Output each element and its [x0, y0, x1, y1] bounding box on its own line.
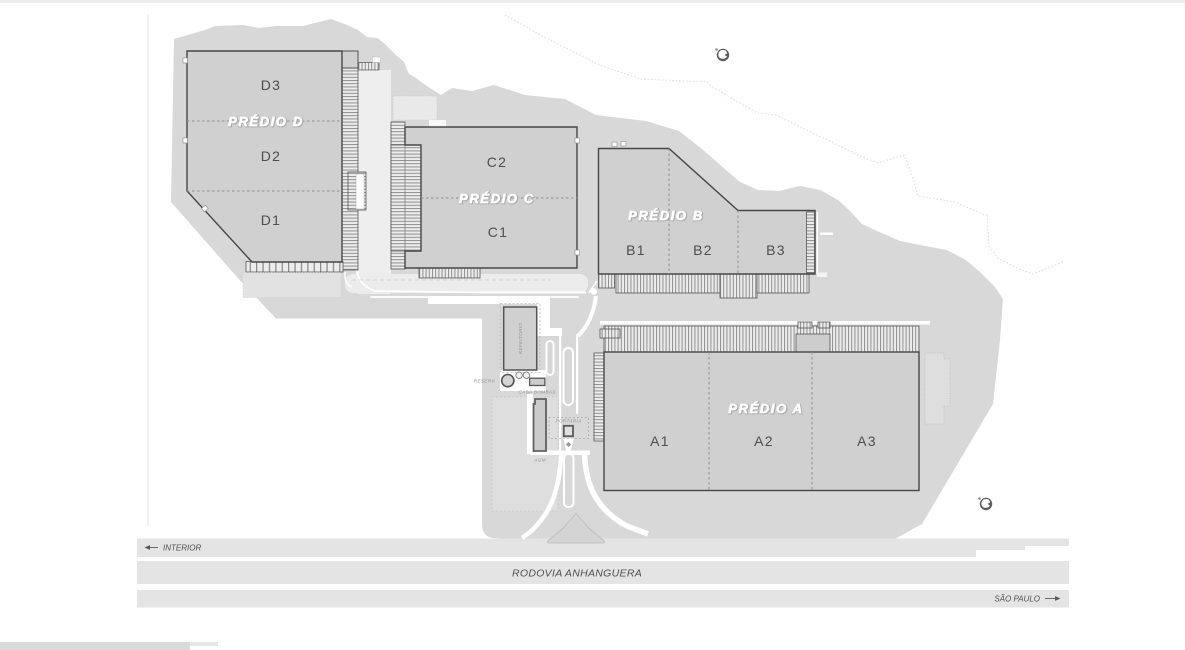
- svg-text:B2: B2: [693, 242, 713, 258]
- svg-text:D2: D2: [261, 148, 282, 164]
- svg-text:PRÉDIO C: PRÉDIO C: [459, 191, 535, 206]
- svg-text:PRÉDIO D: PRÉDIO D: [228, 114, 304, 129]
- svg-text:D1: D1: [261, 212, 282, 228]
- svg-text:PORTARIA: PORTARIA: [556, 419, 582, 424]
- svg-text:C1: C1: [488, 224, 509, 240]
- svg-text:RESERV.: RESERV.: [474, 379, 496, 384]
- svg-text:C2: C2: [487, 154, 508, 170]
- svg-text:A3: A3: [857, 433, 877, 449]
- svg-text:RODOVIA ANHANGUERA: RODOVIA ANHANGUERA: [512, 568, 642, 580]
- svg-text:INTERIOR: INTERIOR: [163, 544, 201, 553]
- svg-text:PRÉDIO B: PRÉDIO B: [628, 208, 704, 223]
- svg-text:REFEITÓRIO: REFEITÓRIO: [517, 323, 523, 355]
- svg-text:SÃO PAULO: SÃO PAULO: [994, 595, 1040, 604]
- svg-text:D3: D3: [261, 77, 282, 93]
- svg-text:CASA BOMBAS: CASA BOMBAS: [518, 390, 556, 395]
- svg-text:PRÉDIO A: PRÉDIO A: [728, 401, 803, 416]
- svg-text:B1: B1: [626, 242, 646, 258]
- svg-text:B3: B3: [766, 242, 786, 258]
- svg-text:A1: A1: [650, 433, 670, 449]
- svg-text:AGM: AGM: [533, 458, 546, 463]
- svg-text:A2: A2: [754, 433, 774, 449]
